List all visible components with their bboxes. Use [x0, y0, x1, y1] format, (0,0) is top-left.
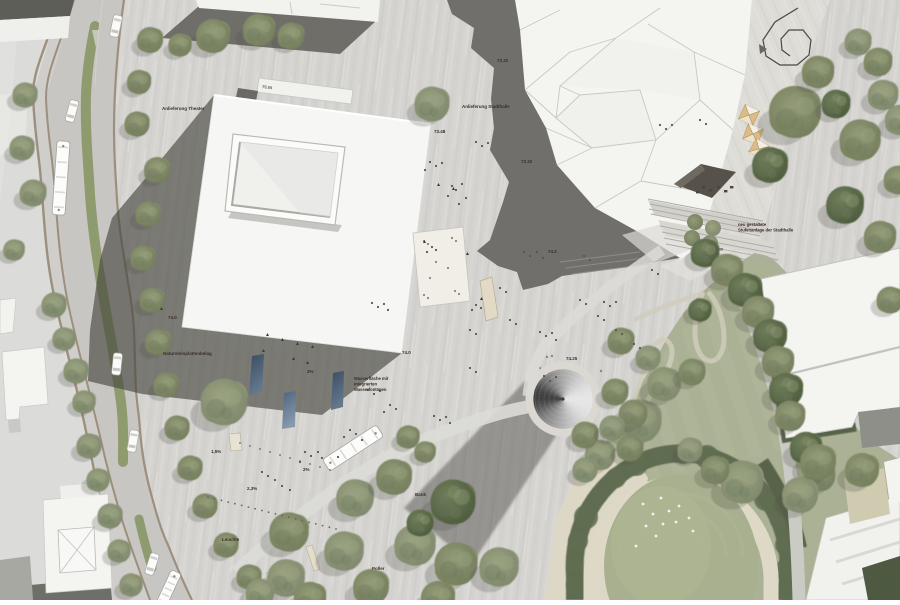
svg-text:2%: 2%	[303, 467, 310, 472]
svg-text:Wasserfläche mit: Wasserfläche mit	[354, 376, 389, 381]
svg-text:73.48: 73.48	[434, 129, 446, 134]
svg-text:73.32: 73.32	[521, 159, 533, 164]
svg-text:Leuchte: Leuchte	[222, 537, 240, 542]
svg-text:2%: 2%	[307, 369, 314, 374]
svg-text:73.32: 73.32	[497, 58, 509, 63]
svg-text:Poller: Poller	[372, 566, 385, 571]
svg-text:74.0: 74.0	[168, 315, 177, 320]
svg-text:74.25: 74.25	[566, 356, 578, 361]
svg-text:Anlieferung Stadthalle: Anlieferung Stadthalle	[462, 104, 510, 109]
svg-text:neu gestaltete: neu gestaltete	[738, 222, 767, 227]
svg-text:74.2: 74.2	[548, 249, 557, 254]
svg-text:Natursteinplattenbelag: Natursteinplattenbelag	[163, 351, 212, 356]
svg-text:2,3%: 2,3%	[247, 486, 257, 491]
svg-text:Stufenanlage der Stadthalle: Stufenanlage der Stadthalle	[738, 228, 794, 233]
svg-text:Wasserfontänen: Wasserfontänen	[354, 387, 387, 392]
svg-text:integrierten: integrierten	[354, 382, 377, 387]
svg-text:1,5%: 1,5%	[211, 449, 221, 454]
svg-text:Bank: Bank	[415, 492, 427, 497]
svg-text:74.0: 74.0	[402, 350, 411, 355]
svg-text:Anlieferung Theater: Anlieferung Theater	[162, 106, 205, 111]
